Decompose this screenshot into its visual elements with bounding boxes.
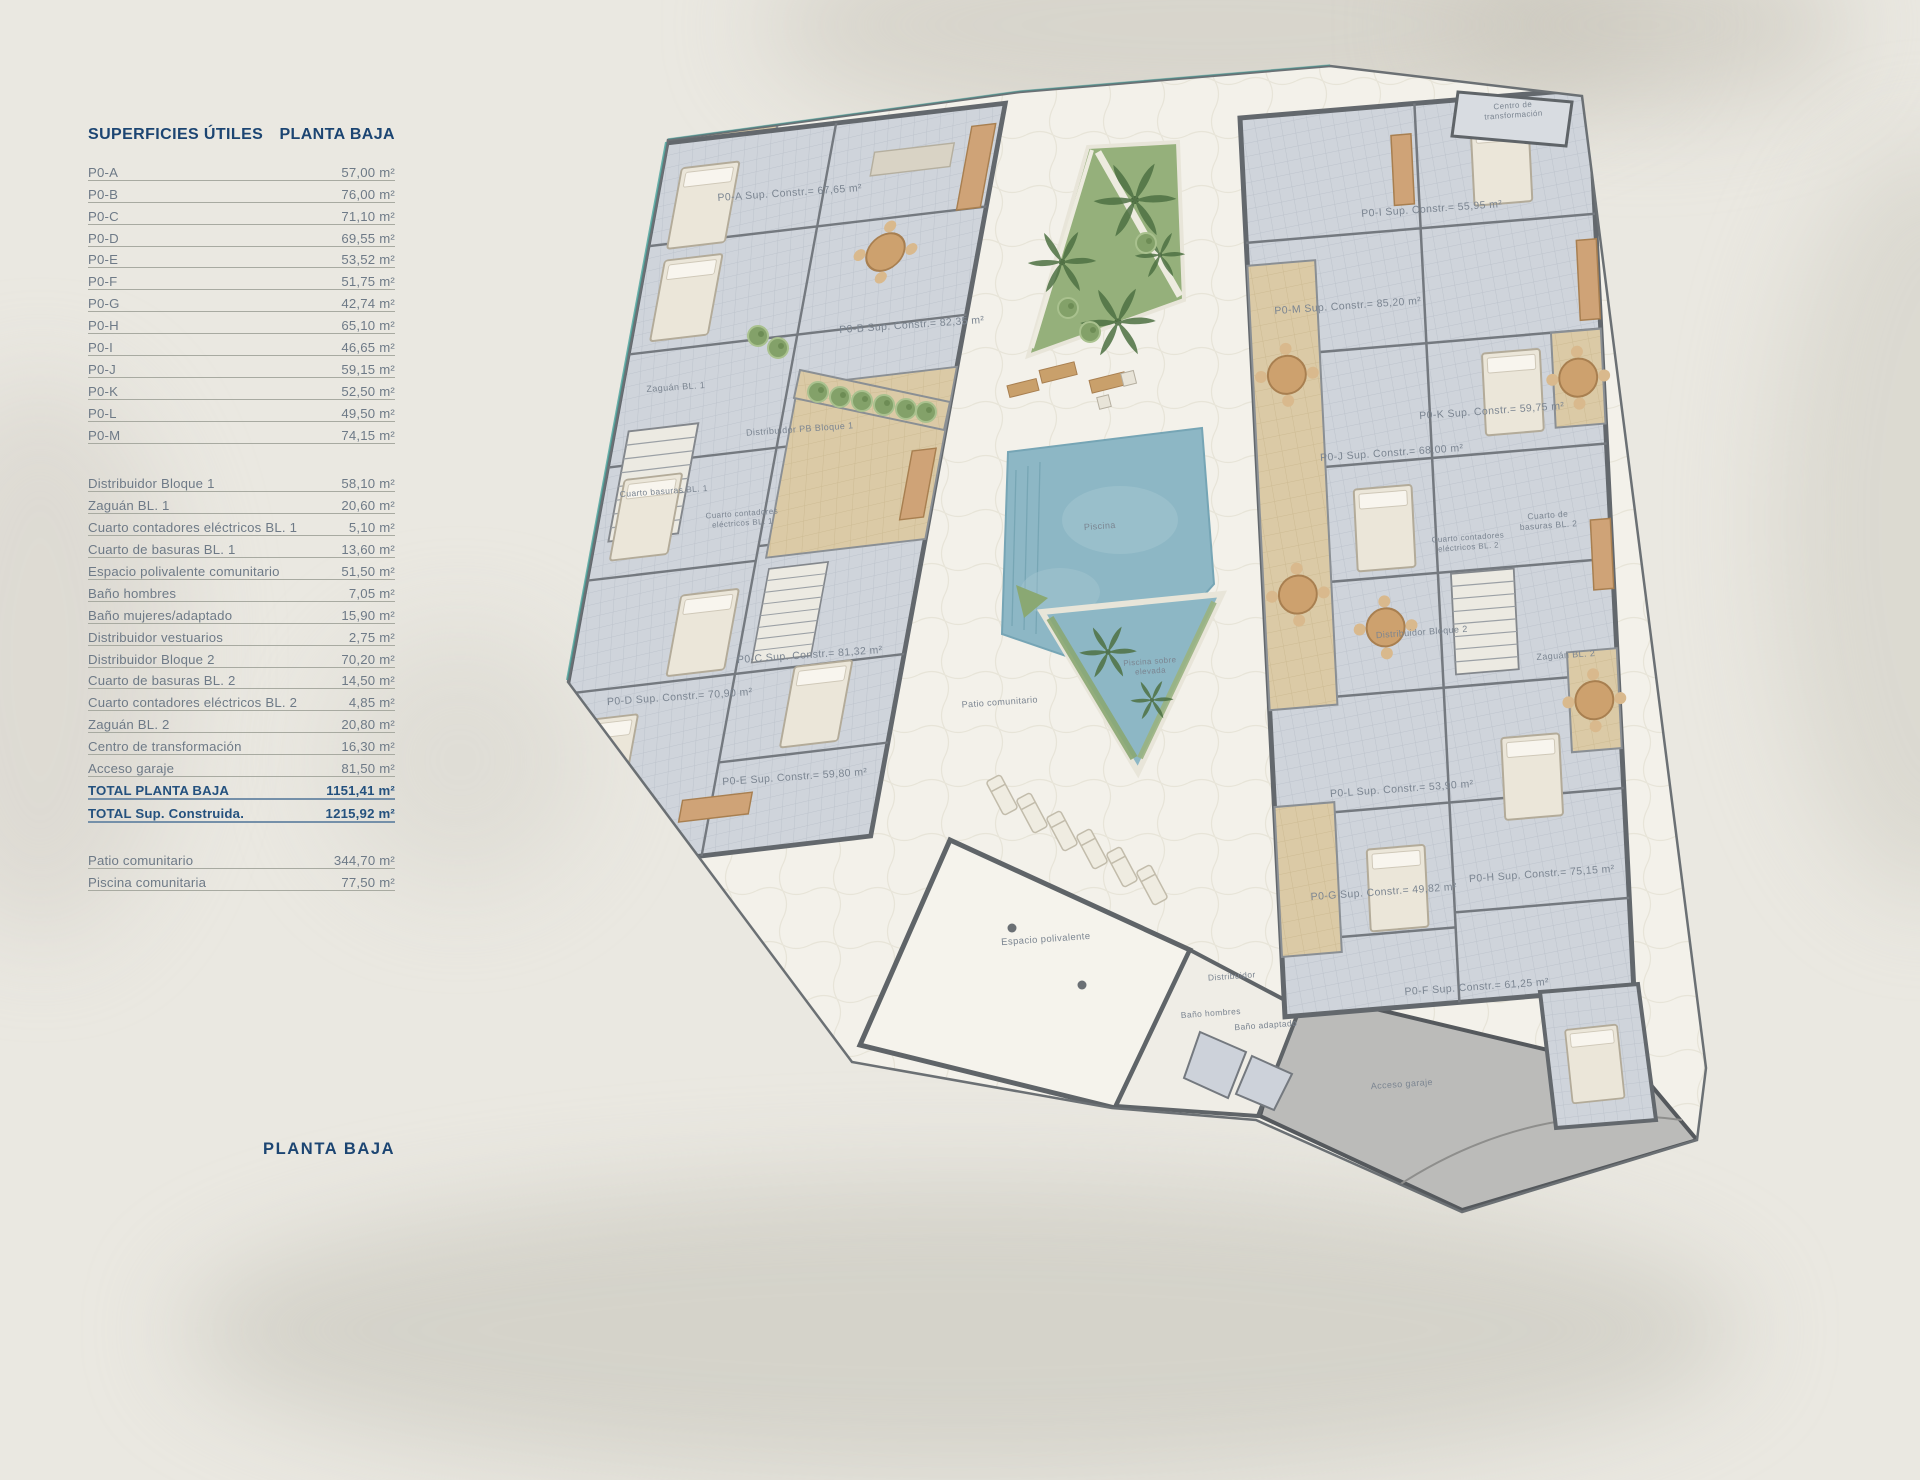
- row-label: Cuarto contadores eléctricos BL. 2: [88, 695, 297, 710]
- table-row: P0-M 74,15 m²: [88, 422, 395, 444]
- table-row: TOTAL PLANTA BAJA 1151,41 m²: [88, 777, 395, 800]
- table-header: SUPERFICIES ÚTILES PLANTA BAJA: [88, 126, 395, 144]
- row-value: 4,85 m²: [349, 695, 395, 710]
- row-label: Espacio polivalente comunitario: [88, 564, 280, 579]
- row-label: P0-L: [88, 406, 117, 421]
- row-value: 49,50 m²: [341, 406, 395, 421]
- row-value: 81,50 m²: [341, 761, 395, 776]
- table-row: Patio comunitario 344,70 m²: [88, 847, 395, 869]
- row-value: 5,10 m²: [349, 520, 395, 535]
- row-value: 1151,41 m²: [326, 783, 395, 798]
- table-row: Acceso garaje 81,50 m²: [88, 755, 395, 777]
- row-label: TOTAL PLANTA BAJA: [88, 783, 229, 798]
- row-value: 69,55 m²: [341, 231, 395, 246]
- table-row: Cuarto contadores eléctricos BL. 2 4,85 …: [88, 689, 395, 711]
- table-row: Zaguán BL. 1 20,60 m²: [88, 492, 395, 514]
- table-row: P0-C 71,10 m²: [88, 203, 395, 225]
- row-label: TOTAL Sup. Construida.: [88, 806, 244, 821]
- row-value: 20,80 m²: [341, 717, 395, 732]
- row-label: Distribuidor Bloque 1: [88, 476, 215, 491]
- table-row: Piscina comunitaria 77,50 m²: [88, 869, 395, 891]
- table-row: P0-G 42,74 m²: [88, 290, 395, 312]
- table-row: Espacio polivalente comunitario 51,50 m²: [88, 558, 395, 580]
- row-value: 2,75 m²: [349, 630, 395, 645]
- table-row: P0-J 59,15 m²: [88, 356, 395, 378]
- table-row: P0-E 53,52 m²: [88, 247, 395, 269]
- row-label: P0-J: [88, 362, 116, 377]
- row-label: Baño hombres: [88, 586, 176, 601]
- table-row: Distribuidor vestuarios 2,75 m²: [88, 624, 395, 646]
- row-label: Distribuidor vestuarios: [88, 630, 223, 645]
- row-label: P0-E: [88, 252, 118, 267]
- row-value: 74,15 m²: [341, 428, 395, 443]
- row-value: 70,20 m²: [341, 652, 395, 667]
- row-label: P0-F: [88, 274, 117, 289]
- table-row: P0-K 52,50 m²: [88, 378, 395, 400]
- table-row: Cuarto contadores eléctricos BL. 1 5,10 …: [88, 514, 395, 536]
- row-label: Zaguán BL. 1: [88, 498, 170, 513]
- table-row: P0-A 57,00 m²: [88, 159, 395, 181]
- table-row: TOTAL Sup. Construida. 1215,92 m²: [88, 800, 395, 823]
- surfaces-table: SUPERFICIES ÚTILES PLANTA BAJA P0-A 57,0…: [88, 126, 395, 891]
- table-row: Distribuidor Bloque 1 58,10 m²: [88, 471, 395, 493]
- row-value: 59,15 m²: [341, 362, 395, 377]
- row-label: Cuarto contadores eléctricos BL. 1: [88, 520, 297, 535]
- row-value: 77,50 m²: [341, 875, 395, 890]
- row-value: 58,10 m²: [341, 476, 395, 491]
- table-row: P0-I 46,65 m²: [88, 334, 395, 356]
- row-label: Distribuidor Bloque 2: [88, 652, 215, 667]
- row-value: 15,90 m²: [341, 608, 395, 623]
- row-label: Baño mujeres/adaptado: [88, 608, 232, 623]
- row-label: P0-M: [88, 428, 120, 443]
- row-value: 65,10 m²: [341, 318, 395, 333]
- block-2-annex: [1540, 984, 1656, 1128]
- units-section: P0-A 57,00 m² P0-B 76,00 m² P0-C 71,10 m…: [88, 159, 395, 444]
- row-label: P0-G: [88, 296, 120, 311]
- row-value: 20,60 m²: [341, 498, 395, 513]
- table-row: Cuarto de basuras BL. 2 14,50 m²: [88, 668, 395, 690]
- table-row: Cuarto de basuras BL. 1 13,60 m²: [88, 536, 395, 558]
- outdoor-section: Patio comunitario 344,70 m² Piscina comu…: [88, 847, 395, 891]
- row-value: 7,05 m²: [349, 586, 395, 601]
- row-label: P0-K: [88, 384, 118, 399]
- row-value: 46,65 m²: [341, 340, 395, 355]
- table-floor-title: PLANTA BAJA: [279, 126, 395, 144]
- table-row: P0-B 76,00 m²: [88, 181, 395, 203]
- row-value: 42,74 m²: [341, 296, 395, 311]
- row-value: 76,00 m²: [341, 187, 395, 202]
- table-title: SUPERFICIES ÚTILES: [88, 126, 263, 144]
- row-label: Cuarto de basuras BL. 2: [88, 673, 236, 688]
- plan-title: PLANTA BAJA: [263, 1140, 395, 1159]
- table-row: P0-L 49,50 m²: [88, 400, 395, 422]
- row-label: Centro de transformación: [88, 739, 242, 754]
- row-label: Patio comunitario: [88, 853, 193, 868]
- table-row: Distribuidor Bloque 2 70,20 m²: [88, 646, 395, 668]
- row-value: 344,70 m²: [334, 853, 395, 868]
- row-value: 1215,92 m²: [326, 806, 395, 821]
- row-value: 52,50 m²: [341, 384, 395, 399]
- row-label: P0-A: [88, 165, 118, 180]
- row-value: 16,30 m²: [341, 739, 395, 754]
- table-row: P0-D 69,55 m²: [88, 225, 395, 247]
- row-value: 51,50 m²: [341, 564, 395, 579]
- table-row: Zaguán BL. 2 20,80 m²: [88, 711, 395, 733]
- row-value: 71,10 m²: [341, 209, 395, 224]
- row-label: Piscina comunitaria: [88, 875, 206, 890]
- row-label: Zaguán BL. 2: [88, 717, 170, 732]
- row-value: 57,00 m²: [341, 165, 395, 180]
- table-row: Baño mujeres/adaptado 15,90 m²: [88, 602, 395, 624]
- row-value: 51,75 m²: [341, 274, 395, 289]
- row-label: P0-C: [88, 209, 119, 224]
- row-label: P0-I: [88, 340, 113, 355]
- floorplan-page: { "page": { "footer_title": "PLANTA BAJA…: [0, 0, 1920, 1358]
- row-label: Cuarto de basuras BL. 1: [88, 542, 236, 557]
- row-label: P0-H: [88, 318, 119, 333]
- table-row: Baño hombres 7,05 m²: [88, 580, 395, 602]
- row-label: P0-D: [88, 231, 119, 246]
- common-areas-section: Distribuidor Bloque 1 58,10 m² Zaguán BL…: [88, 471, 395, 823]
- row-value: 53,52 m²: [341, 252, 395, 267]
- row-value: 14,50 m²: [341, 673, 395, 688]
- table-row: P0-F 51,75 m²: [88, 268, 395, 290]
- row-label: P0-B: [88, 187, 118, 202]
- table-row: P0-H 65,10 m²: [88, 312, 395, 334]
- row-label: Acceso garaje: [88, 761, 174, 776]
- row-value: 13,60 m²: [341, 542, 395, 557]
- table-row: Centro de transformación 16,30 m²: [88, 733, 395, 755]
